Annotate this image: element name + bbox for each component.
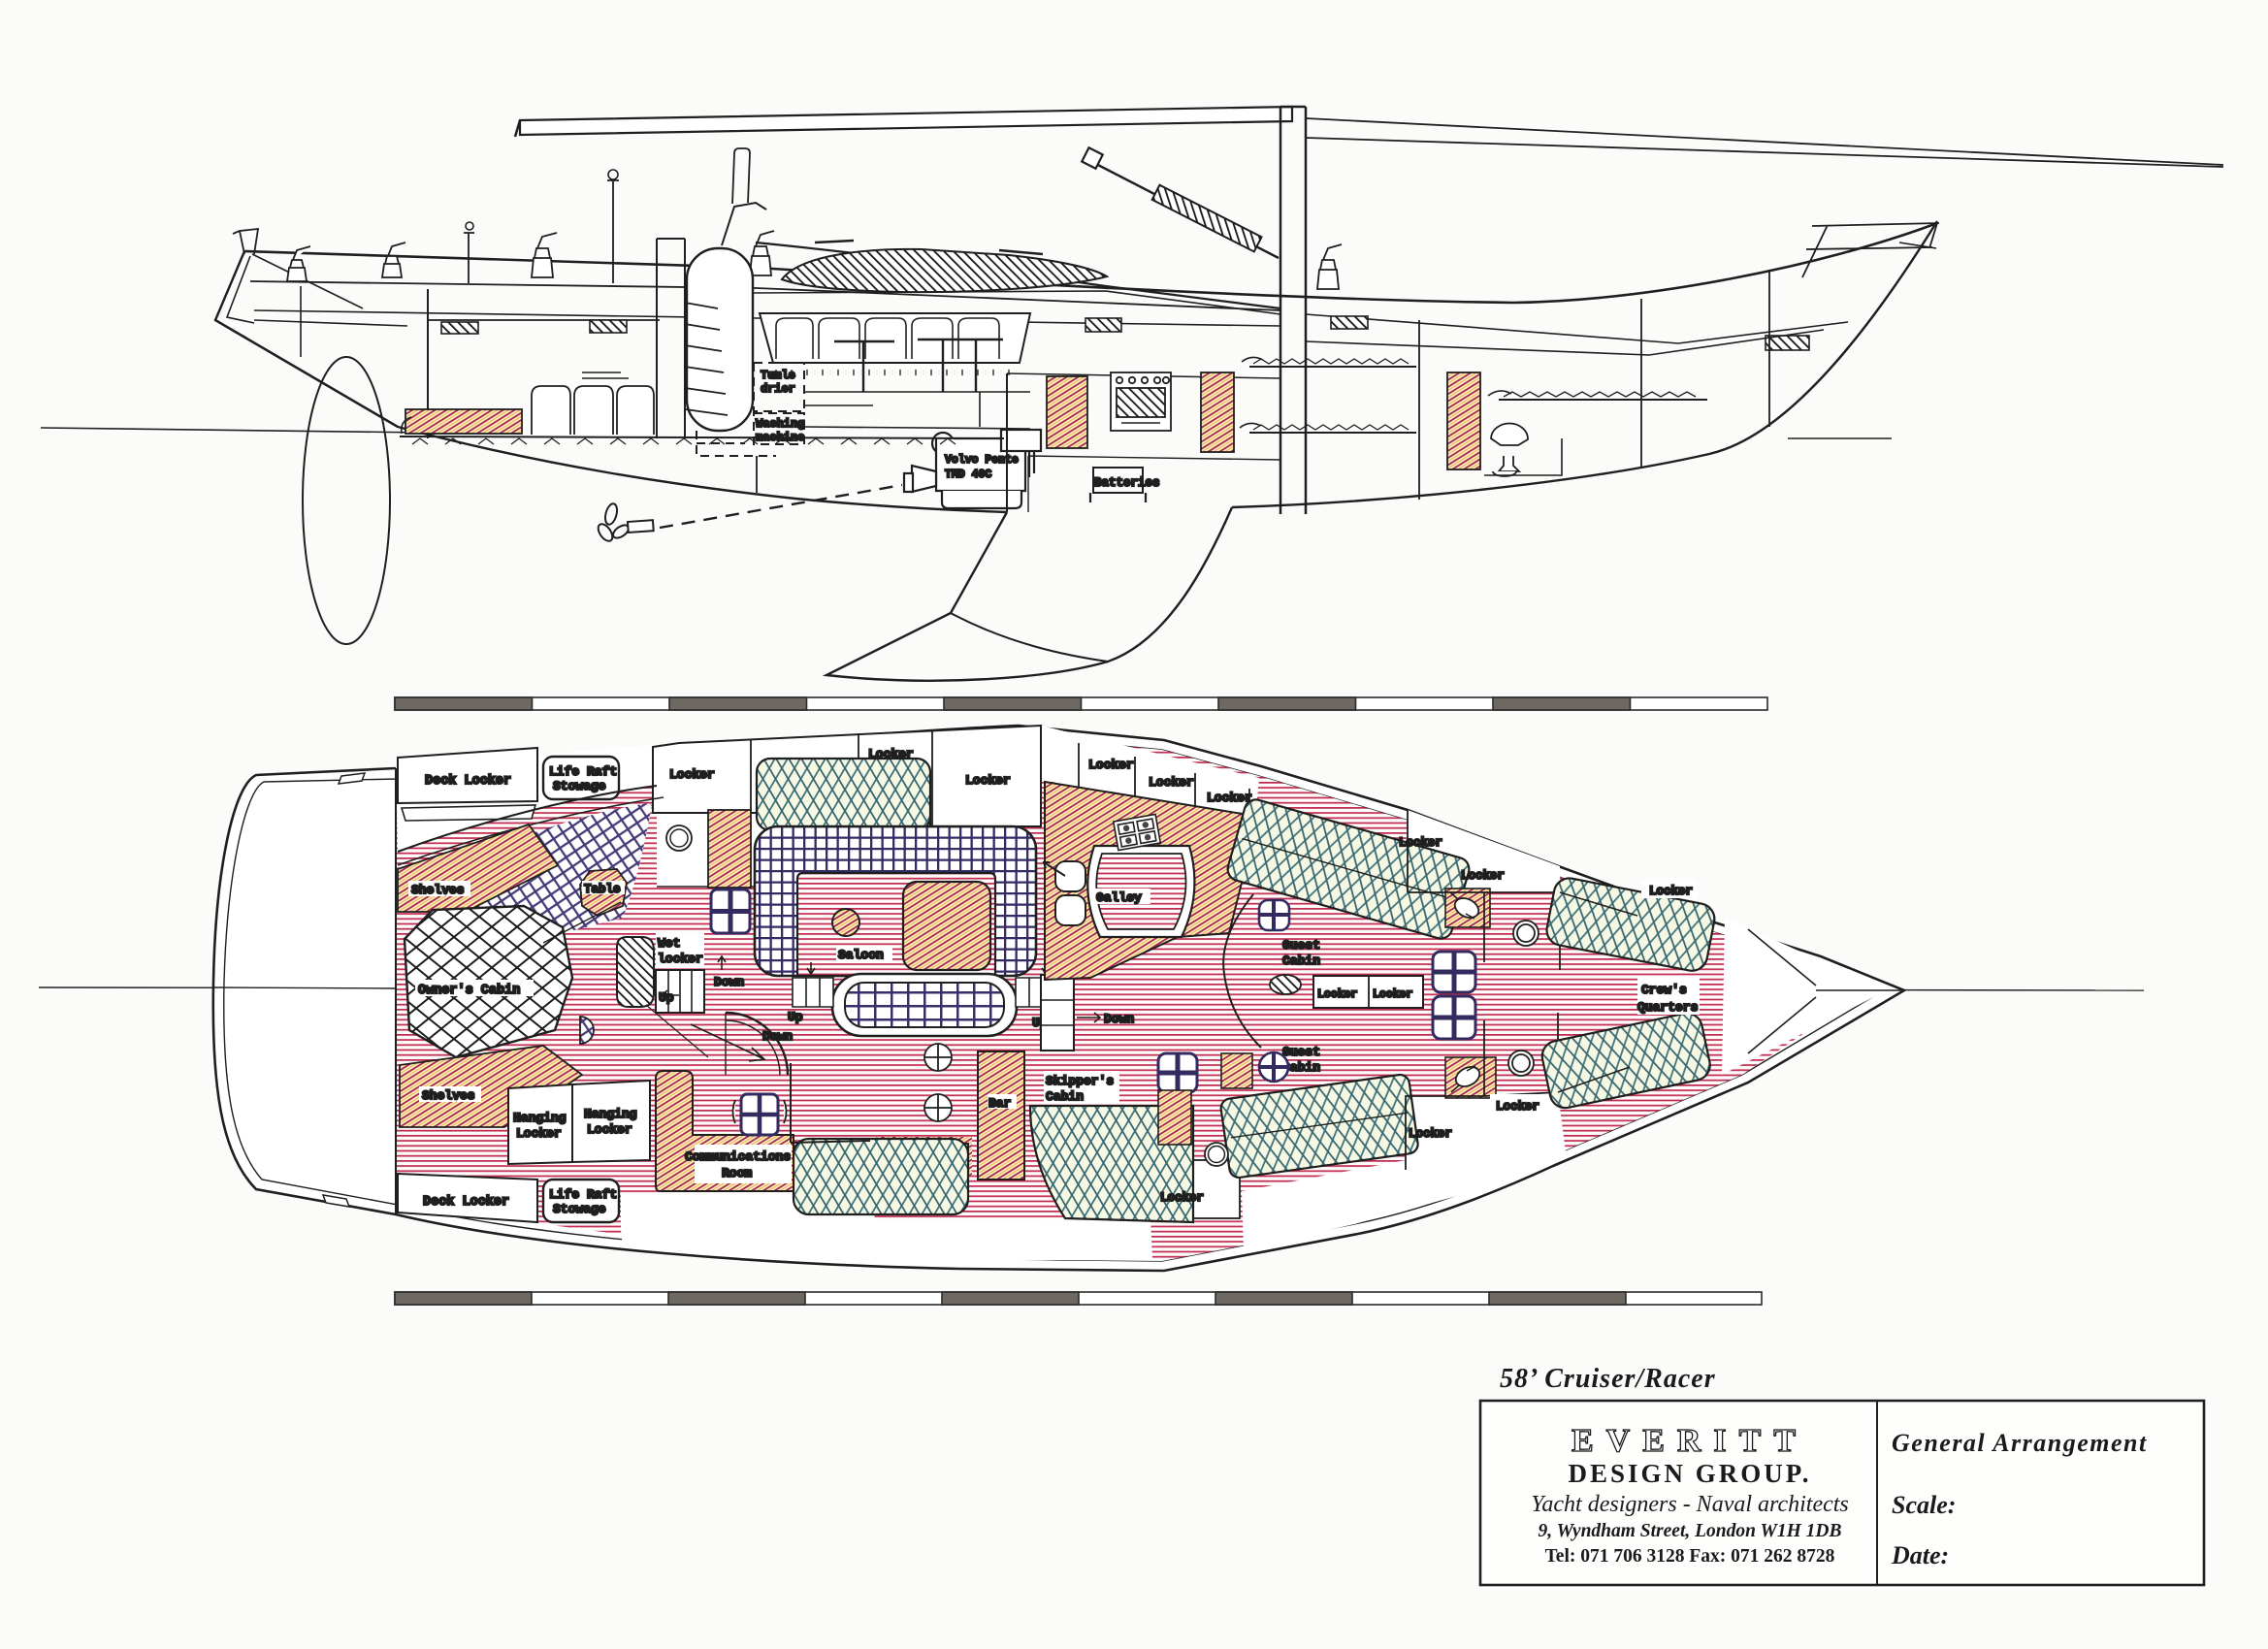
svg-text:Deck Locker: Deck Locker xyxy=(423,1195,509,1210)
svg-text:locker: locker xyxy=(658,952,703,966)
svg-text:Locker: Locker xyxy=(965,773,1011,788)
svg-text:Guest: Guest xyxy=(1282,938,1320,953)
svg-text:machine: machine xyxy=(756,431,804,444)
svg-text:Washing: Washing xyxy=(756,417,804,431)
svg-text:Crew's: Crew's xyxy=(1641,983,1687,997)
svg-text:Locker: Locker xyxy=(1461,869,1505,883)
svg-text:Locker: Locker xyxy=(1399,836,1442,850)
svg-text:Locker: Locker xyxy=(1207,791,1252,805)
svg-text:58’ Cruiser/Racer: 58’ Cruiser/Racer xyxy=(1500,1364,1716,1394)
svg-text:Deck Locker: Deck Locker xyxy=(425,774,511,789)
svg-text:Stowage: Stowage xyxy=(553,1202,606,1216)
svg-text:Up: Up xyxy=(788,1010,803,1024)
svg-text:Tel: 071 706 3128 Fax: 071 262: Tel: 071 706 3128 Fax: 071 262 8728 xyxy=(1545,1546,1835,1567)
svg-text:General Arrangement: General Arrangement xyxy=(1892,1429,2148,1457)
svg-text:Yacht designers - Naval archit: Yacht designers - Naval architects xyxy=(1531,1492,1849,1517)
svg-text:Shelves: Shelves xyxy=(411,883,465,897)
svg-text:Wet: Wet xyxy=(658,936,680,951)
svg-text:Galley: Galley xyxy=(1096,890,1142,905)
svg-text:Locker: Locker xyxy=(1149,775,1194,790)
svg-text:Down: Down xyxy=(714,975,744,989)
svg-text:Locker: Locker xyxy=(1088,758,1134,772)
svg-text:Cabin: Cabin xyxy=(1046,1089,1084,1104)
svg-text:Date:: Date: xyxy=(1891,1541,1949,1569)
svg-text:Life Raft: Life Raft xyxy=(549,764,617,779)
svg-text:Locker: Locker xyxy=(587,1122,632,1137)
svg-text:Locker: Locker xyxy=(669,767,715,782)
svg-text:Locker: Locker xyxy=(1496,1100,1539,1114)
svg-text:Communications: Communications xyxy=(685,1149,791,1164)
svg-text:Scale:: Scale: xyxy=(1892,1491,1956,1519)
svg-text:Down: Down xyxy=(1104,1012,1134,1026)
svg-text:Locker: Locker xyxy=(1409,1127,1452,1141)
svg-text:Down: Down xyxy=(762,1029,793,1044)
svg-text:TMD 40C: TMD 40C xyxy=(945,469,991,481)
svg-text:Guest: Guest xyxy=(1282,1045,1320,1059)
svg-text:Locker: Locker xyxy=(1160,1191,1204,1205)
svg-text:drier: drier xyxy=(761,382,795,396)
svg-text:Hanging: Hanging xyxy=(584,1107,637,1121)
svg-text:Hanging: Hanging xyxy=(513,1111,567,1125)
svg-text:EVERITT: EVERITT xyxy=(1571,1423,1808,1459)
svg-text:DESIGN GROUP.: DESIGN GROUP. xyxy=(1568,1459,1811,1488)
svg-text:Saloon: Saloon xyxy=(838,948,884,962)
svg-text:Cabin: Cabin xyxy=(1282,954,1320,968)
svg-text:Shelves: Shelves xyxy=(422,1088,475,1103)
svg-text:Quarters: Quarters xyxy=(1637,1000,1699,1015)
svg-text:Owner's Cabin: Owner's Cabin xyxy=(418,984,520,998)
svg-text:Batteries: Batteries xyxy=(1094,476,1160,490)
svg-text:Up: Up xyxy=(659,990,674,1005)
svg-text:Life Raft: Life Raft xyxy=(549,1187,617,1202)
svg-text:Tumle: Tumle xyxy=(761,369,795,382)
svg-text:Locker: Locker xyxy=(1317,988,1358,1001)
svg-text:Locker: Locker xyxy=(1373,988,1413,1001)
svg-text:Bar: Bar xyxy=(988,1096,1011,1111)
svg-text:Locker: Locker xyxy=(1649,885,1693,898)
svg-text:9, Wyndham Street, London W1H: 9, Wyndham Street, London W1H 1DB xyxy=(1539,1521,1842,1541)
svg-text:Locker: Locker xyxy=(516,1126,562,1141)
svg-text:Table: Table xyxy=(584,883,621,896)
svg-text:Skipper's: Skipper's xyxy=(1046,1074,1114,1088)
svg-text:Stowage: Stowage xyxy=(553,779,606,793)
svg-text:Room: Room xyxy=(722,1166,752,1180)
